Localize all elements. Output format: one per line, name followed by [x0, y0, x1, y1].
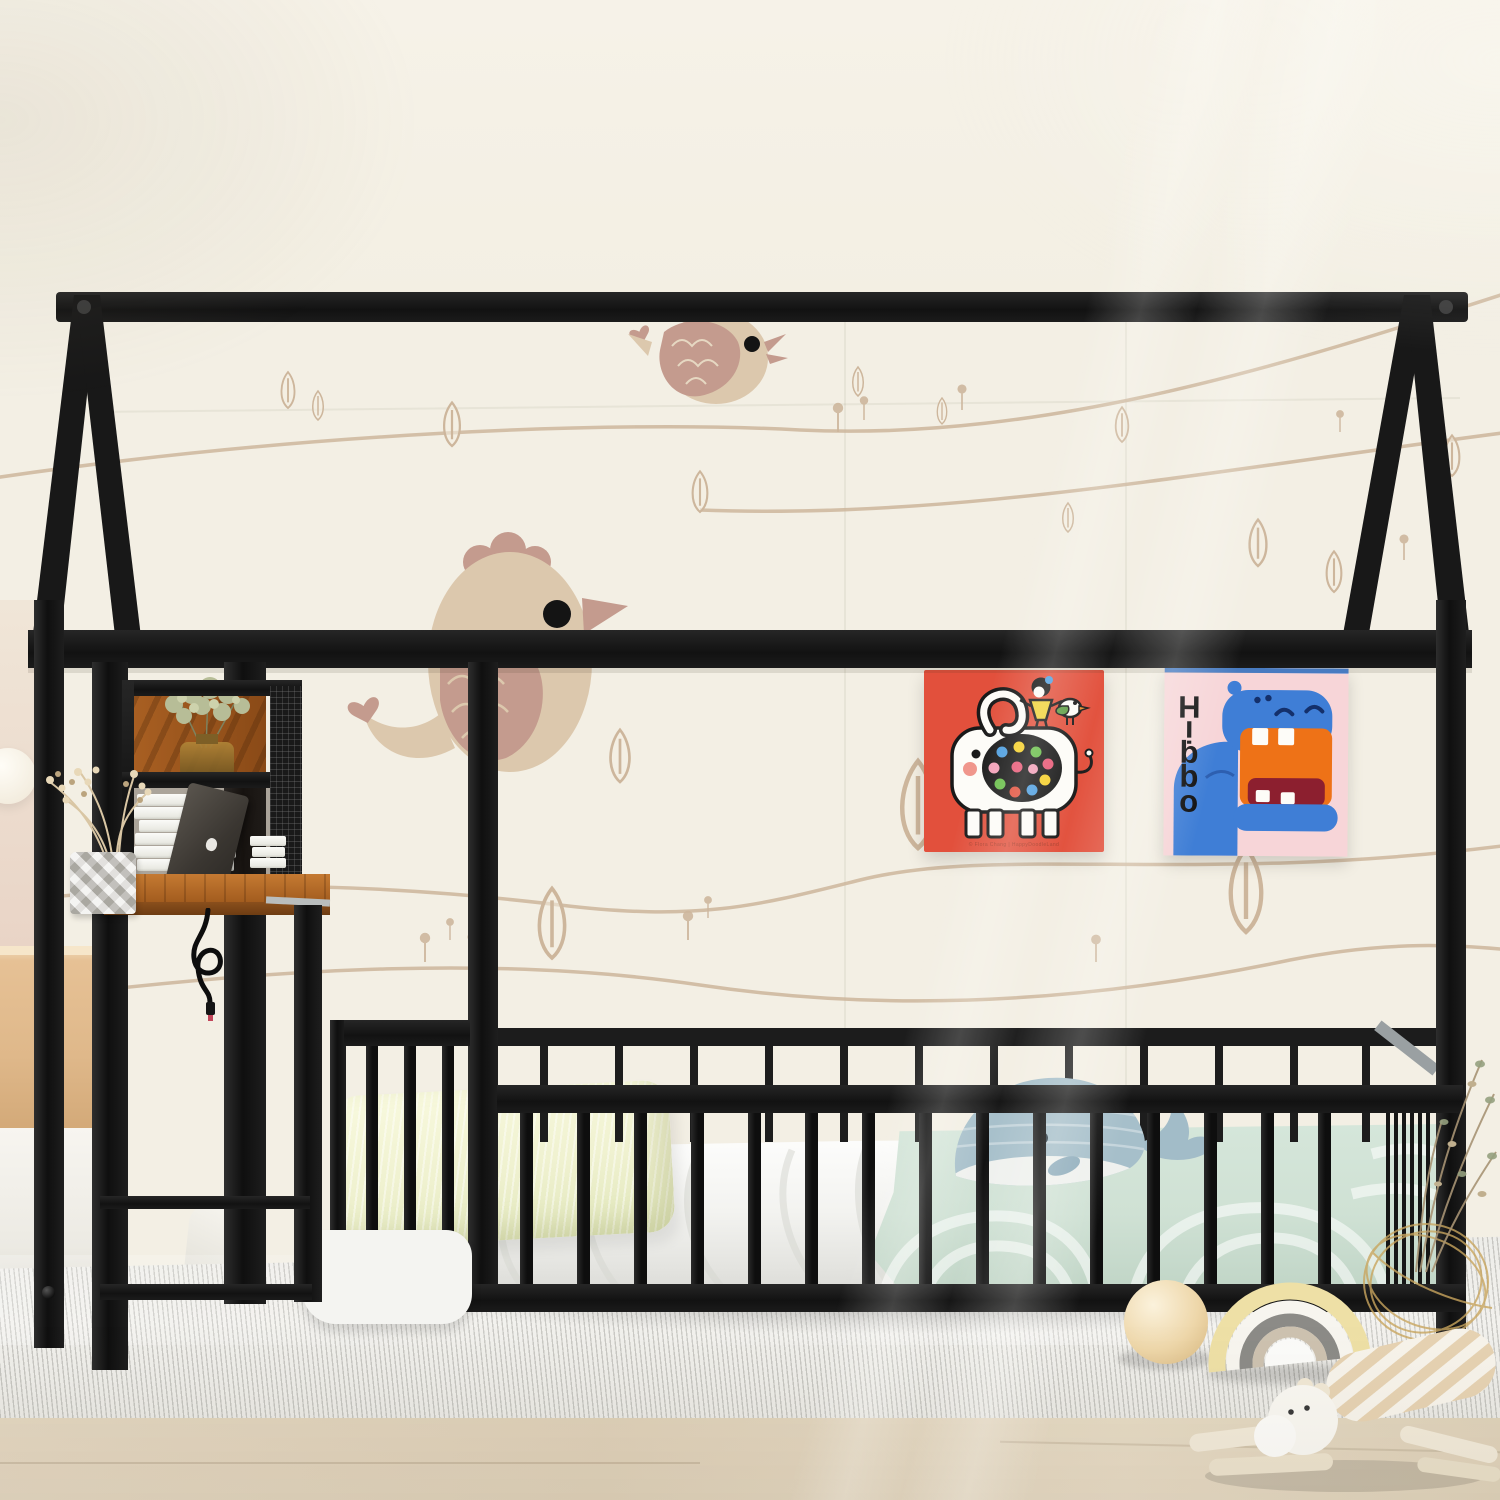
guardrail-top-rail: [497, 1085, 1463, 1113]
desk-rear-right-leg: [294, 905, 322, 1302]
sheet-drape: [302, 1230, 472, 1324]
glass-vase-neck: [196, 734, 218, 744]
giraffe-plush: [1185, 1316, 1500, 1500]
guardrail-slat: [976, 1113, 989, 1284]
roof-gables: [0, 0, 1500, 700]
book: [250, 858, 286, 868]
floor-plank-seam: [0, 1462, 700, 1464]
guardrail-slat: [805, 1113, 818, 1284]
far-rail: [498, 1028, 1438, 1046]
desk-stretcher-bottom: [100, 1284, 312, 1300]
whale-plush: [930, 1048, 1220, 1198]
elephant-poster-credit: © Flora Chang | HappyDoodleLand: [924, 842, 1104, 848]
book-stack-small: [250, 836, 286, 869]
book: [250, 836, 286, 846]
guardrail-slat: [862, 1113, 875, 1284]
guardrail-slat: [748, 1113, 761, 1284]
guardrail-slat: [634, 1113, 647, 1284]
post-bolt: [42, 1286, 55, 1299]
guardrail-slat: [577, 1113, 590, 1284]
usb-cable: [178, 908, 250, 1024]
middle-post: [468, 662, 498, 1304]
guardrail-slat: [1090, 1113, 1103, 1284]
guardrail-slat: [520, 1113, 533, 1284]
guardrail-slat: [691, 1113, 704, 1284]
guardrail-slat: [1147, 1113, 1160, 1284]
head-guard-top-rail: [344, 1020, 470, 1046]
corner-post-left: [34, 600, 64, 1348]
dried-plant-right: [1402, 1024, 1500, 1274]
scene: © Flora Chang | HappyDoodleLand: [0, 0, 1500, 1500]
hippo-poster-title: Hippo: [1172, 693, 1207, 817]
studded-vase: [70, 852, 136, 914]
book: [252, 847, 285, 857]
guardrail-slat: [919, 1113, 932, 1284]
guardrail-slat: [1033, 1113, 1046, 1284]
desk-stretcher-mid: [100, 1196, 310, 1209]
